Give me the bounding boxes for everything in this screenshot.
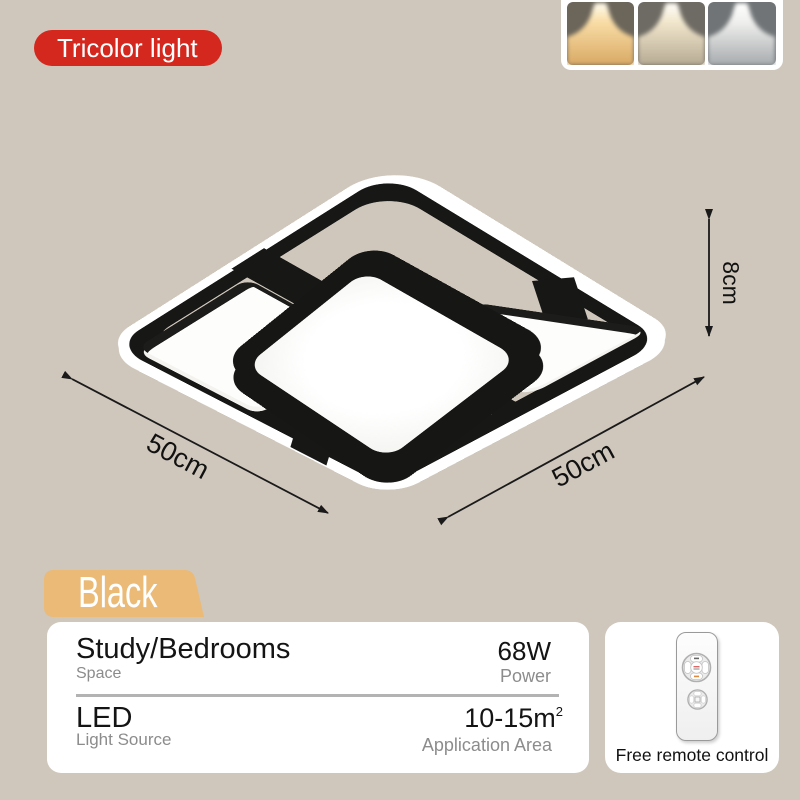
svg-text:8cm: 8cm	[718, 261, 744, 304]
svg-text:50cm: 50cm	[142, 428, 214, 485]
svg-text:Black: Black	[78, 570, 158, 617]
